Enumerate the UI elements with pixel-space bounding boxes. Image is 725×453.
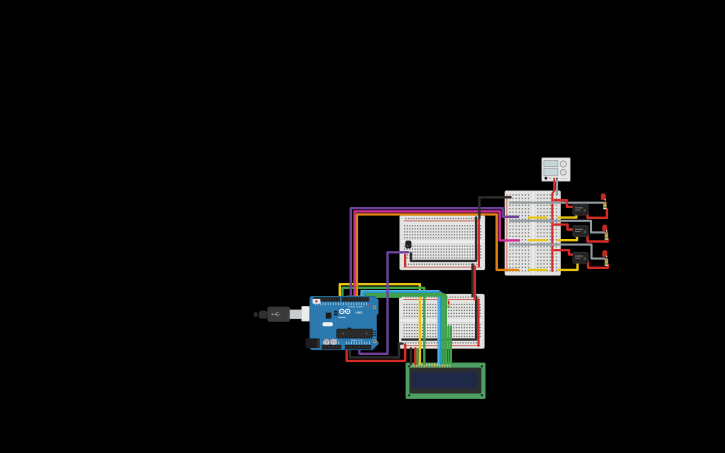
- svg-text:POWER: POWER: [330, 340, 338, 342]
- svg-text:ANALOG IN: ANALOG IN: [351, 339, 363, 342]
- svg-text:UNO: UNO: [356, 310, 363, 314]
- svg-text:DIGITAL (PWM~): DIGITAL (PWM~): [348, 305, 364, 308]
